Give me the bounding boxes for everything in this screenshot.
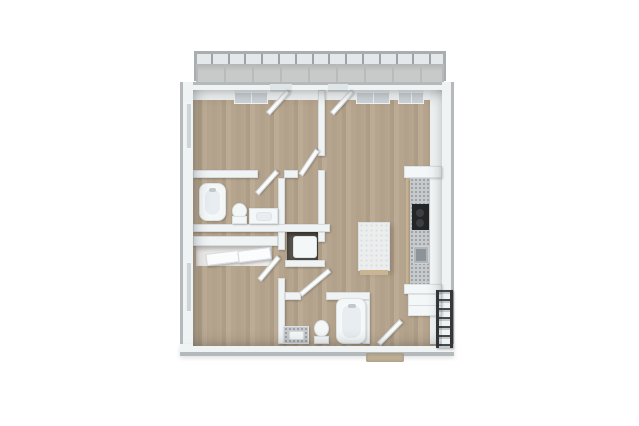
kitchen-sink [413, 246, 429, 264]
balcony-door-opening-bedroom1 [270, 84, 292, 92]
vanity-sink-1 [249, 208, 278, 224]
wall-closet-right [318, 170, 325, 232]
wall-utility-right [318, 232, 325, 242]
vanity-sink-2 [283, 326, 309, 344]
railing-post [244, 54, 246, 64]
window-bedroom1-top [234, 90, 268, 104]
window-living-top-1 [356, 90, 390, 104]
railing-post [379, 54, 381, 64]
railing-post [228, 54, 230, 64]
railing-post [295, 54, 297, 64]
railing-post [261, 54, 263, 64]
balcony-floor [196, 64, 444, 82]
metal-shelf-rack [436, 290, 453, 348]
wall-bedroom1-bottom-a [193, 170, 258, 178]
railing-post [345, 54, 347, 64]
railing-post [278, 54, 280, 64]
bathtub-2-basin [340, 303, 363, 340]
kitchen-island-base [360, 270, 388, 275]
railing-post [328, 54, 330, 64]
railing-post [412, 54, 414, 64]
burner-2 [416, 219, 424, 227]
floor-plan-render [0, 0, 639, 426]
kitchen-countertop [410, 178, 430, 286]
toilet-1-tank [232, 216, 247, 224]
wall-bedroom2-top [193, 236, 278, 246]
toilet-2-bowl [314, 320, 329, 337]
kitchen-sink-basin [416, 249, 426, 261]
railing-post [396, 54, 398, 64]
balcony-glass-railing [194, 51, 446, 64]
wall-bedroom1-living [318, 90, 325, 156]
bathtub-2 [336, 298, 366, 344]
bathtub-2-faucet [348, 304, 356, 308]
cooktop-oven [412, 204, 429, 230]
bathtub-1 [199, 183, 226, 221]
sink-2-basin [289, 331, 304, 340]
doormat [366, 353, 404, 362]
bathtub-1-faucet [209, 188, 216, 192]
water-heater [293, 236, 317, 258]
wall-utility-bottom [285, 260, 325, 267]
wall-bedroom1-bottom-b [284, 170, 298, 178]
toilet-2-tank [314, 336, 329, 344]
railing-post [312, 54, 314, 64]
burner-1 [416, 209, 424, 217]
railing-post [429, 54, 431, 64]
balcony-door-opening-living [328, 84, 348, 92]
wall-bedroom2-right-a [278, 232, 285, 250]
window-bedroom1-left [184, 103, 192, 149]
kitchen-counter-cap-north [404, 166, 442, 178]
kitchen-island [358, 222, 390, 271]
sink-1-basin [256, 212, 272, 221]
window-bedroom2-left [184, 262, 192, 312]
window-living-top-2 [398, 90, 424, 104]
railing-post [211, 54, 213, 64]
railing-post [362, 54, 364, 64]
wall-bathroom1-bottom [193, 224, 330, 232]
